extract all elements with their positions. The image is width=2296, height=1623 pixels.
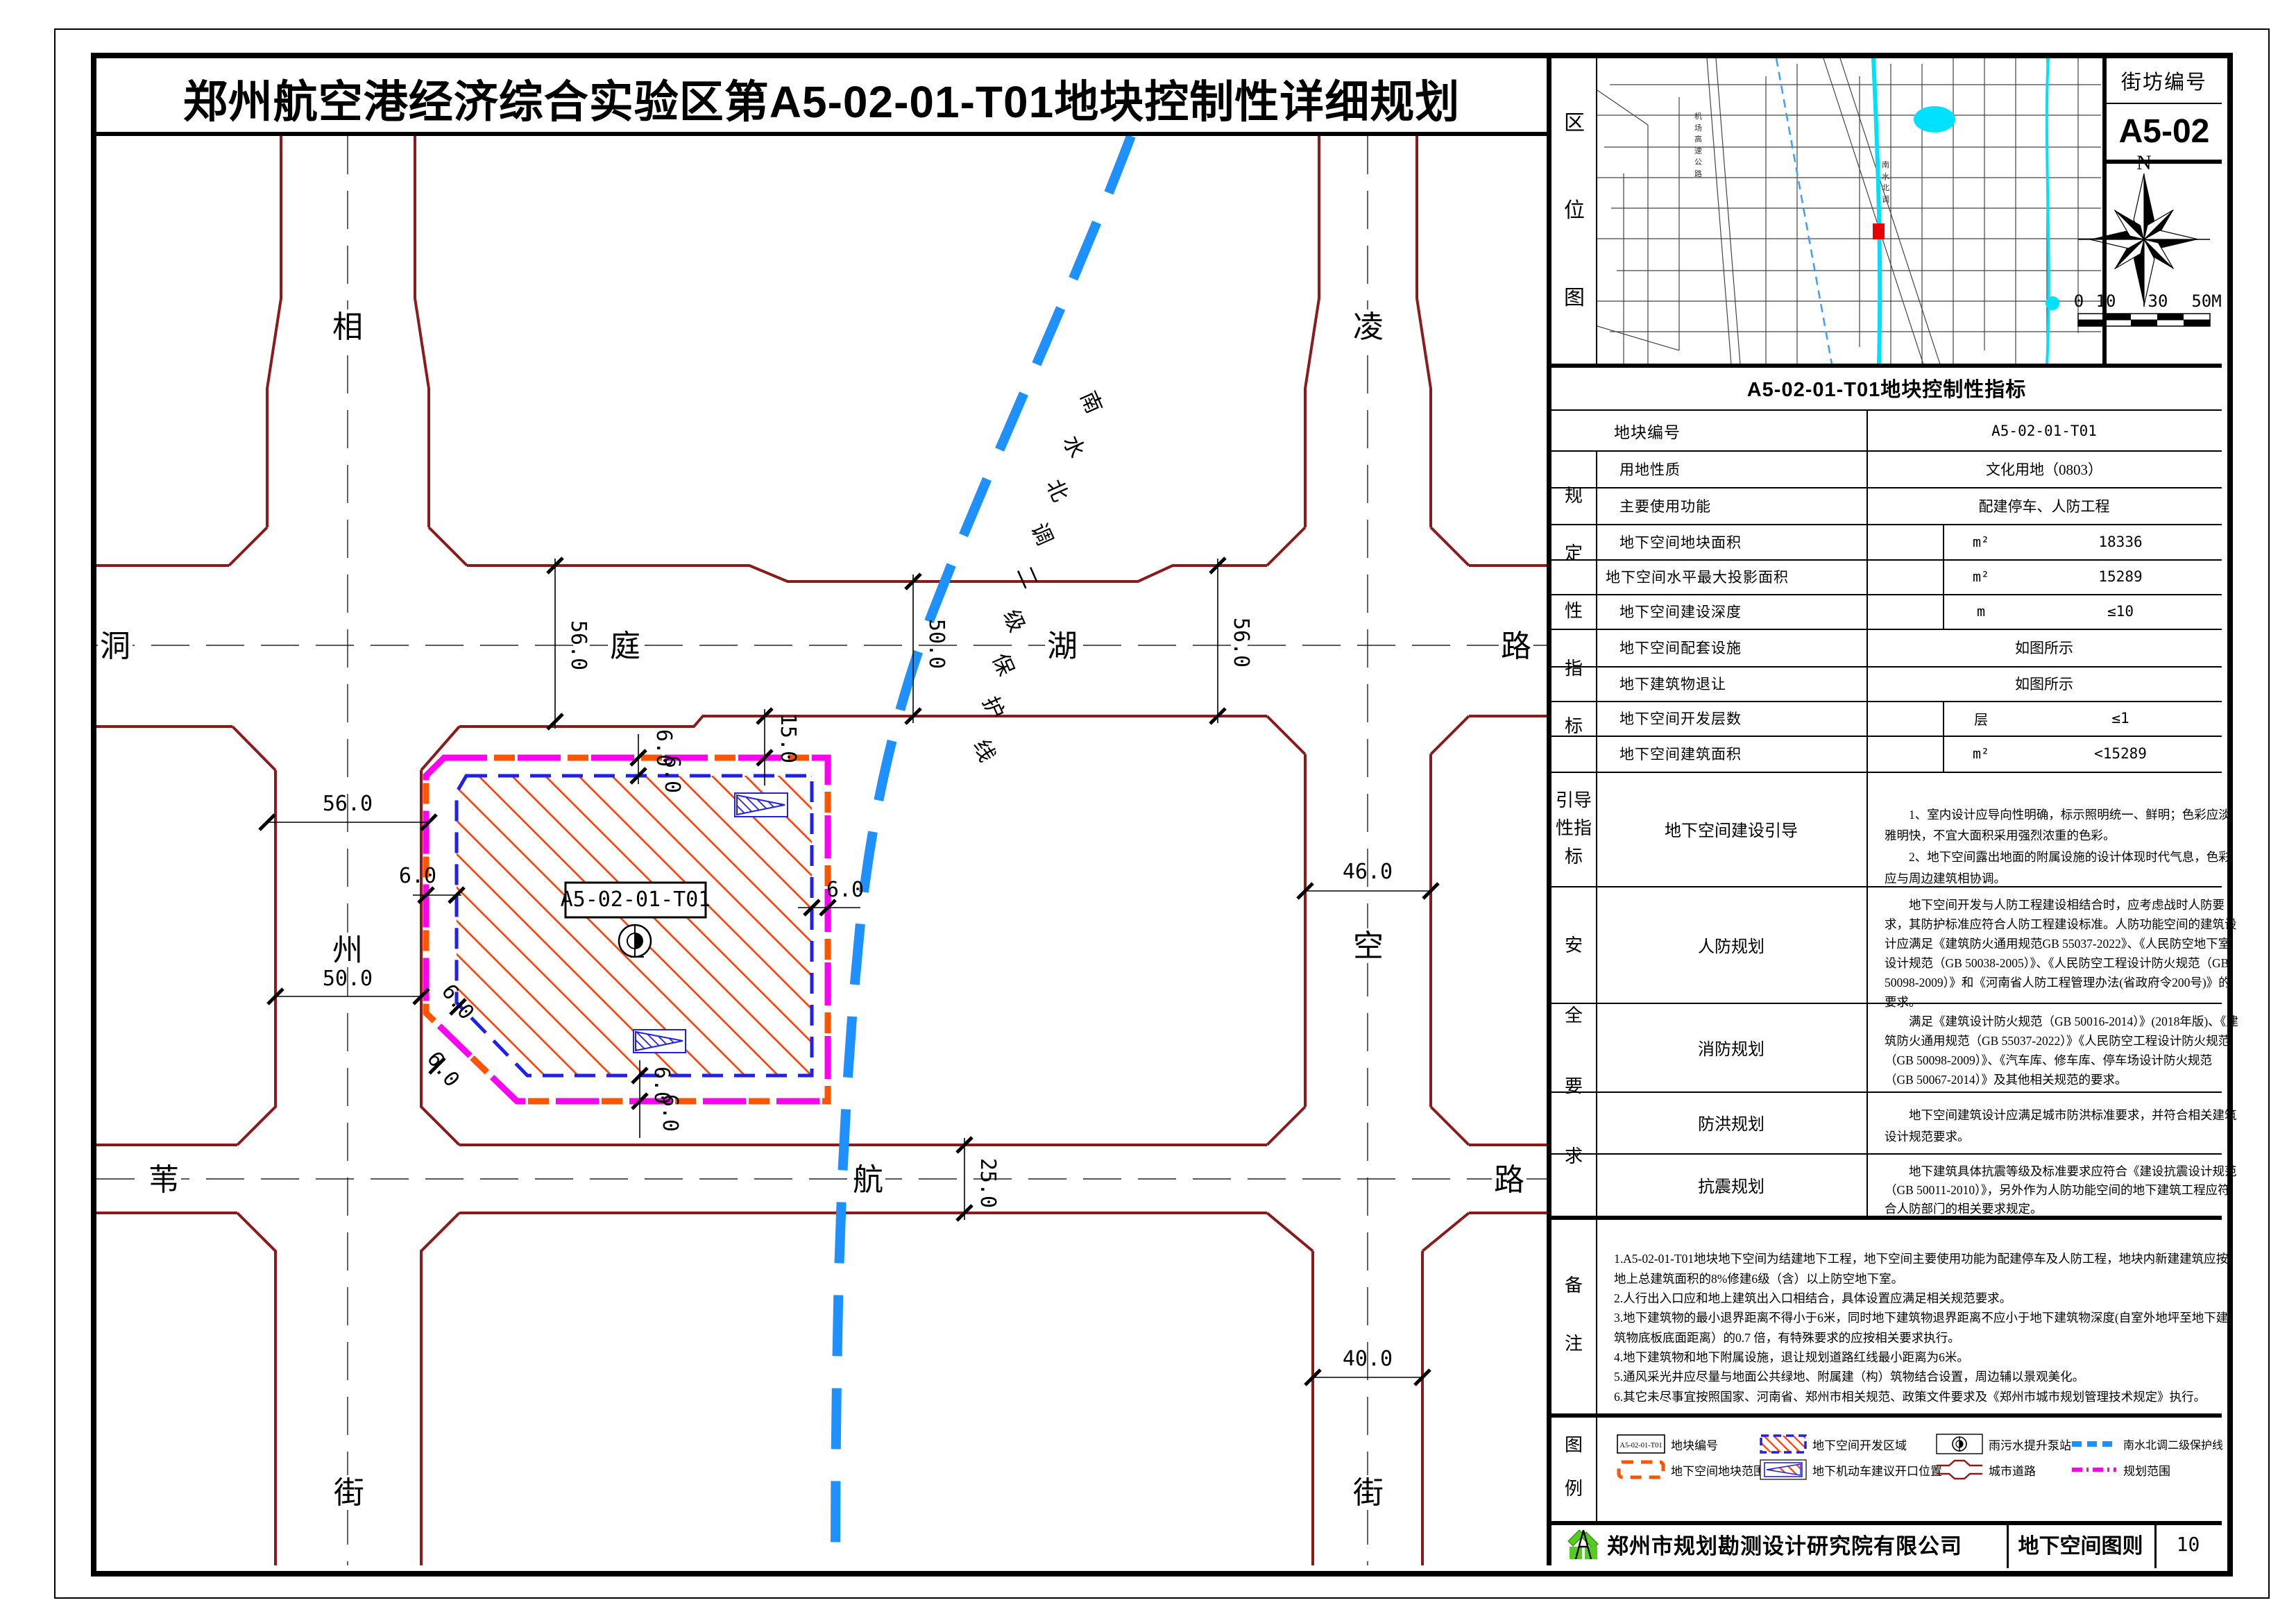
svg-text:级: 级 — [998, 606, 1030, 636]
block-number: A5-02 — [2107, 103, 2222, 160]
dimension-lines — [267, 559, 1431, 1377]
svg-text:相: 相 — [332, 310, 363, 344]
row-projection-unit: m² — [1943, 559, 2019, 594]
inset-pond — [2046, 296, 2059, 310]
svg-text:凌: 凌 — [1353, 310, 1384, 344]
row-floor-area-value: <15289 — [2019, 736, 2222, 772]
road-labels: 相 州 街 凌 空 街 洞 庭 湖 路 苇 航 路 — [100, 310, 1531, 1510]
safety-fire-label: 消防规划 — [1596, 1003, 1866, 1091]
svg-text:30: 30 — [2148, 291, 2168, 311]
row-setback-value: 如图所示 — [1866, 666, 2222, 701]
guide-label-cell: 地下空间建设引导 — [1596, 772, 1866, 886]
svg-text:水: 水 — [1058, 432, 1089, 461]
row-land-use-label: 用地性质 — [1596, 450, 1866, 487]
svg-text:湖: 湖 — [1047, 629, 1078, 663]
row-depth-label: 地下空间建设深度 — [1596, 594, 1866, 629]
legend-plot-range: 地下空间地块范围 — [1617, 1459, 1765, 1480]
section-regulatory-label: 规定性指标 — [1551, 450, 1596, 772]
legend-planning-range: 规划范围 — [2070, 1459, 2170, 1480]
plot-number-label-cell: 地块编号 — [1551, 411, 1866, 450]
company-logo — [1565, 1526, 1601, 1562]
legend-city-road-icon — [1936, 1459, 1983, 1480]
svg-text:6.0: 6.0 — [422, 1047, 464, 1091]
svg-text:56.0: 56.0 — [323, 792, 373, 816]
svg-text:保: 保 — [987, 649, 1019, 679]
legend-plot-number-icon: A5-02-01-T01 — [1617, 1434, 1665, 1454]
inset-street-label: 机场高速公路 — [1694, 111, 1703, 180]
location-inset — [1597, 58, 2101, 364]
svg-text:56.0: 56.0 — [566, 620, 590, 670]
svg-text:50.0: 50.0 — [924, 619, 949, 669]
parcel-label: A5-02-01-T01 — [561, 887, 711, 912]
location-label: 区位图 — [1551, 58, 1596, 364]
svg-text:航: 航 — [853, 1163, 883, 1197]
plot-number-value-cell: A5-02-01-T01 — [1866, 411, 2222, 450]
row-floor-area-label: 地下空间建筑面积 — [1596, 736, 1866, 772]
row-floor-area-unit: m² — [1943, 736, 2019, 772]
svg-text:护: 护 — [978, 692, 1009, 722]
row-projection-label: 地下空间水平最大投影面积 — [1596, 559, 1866, 594]
svg-text:庭: 庭 — [610, 629, 640, 663]
notes-text: 1.A5-02-01-T01地块地下空间为结建地下工程，地下空间主要使用功能为配… — [1596, 1223, 2251, 1422]
svg-text:6.0: 6.0 — [399, 864, 436, 888]
pump-station-icon — [619, 925, 651, 957]
section-safety-label: 安全要求 — [1551, 886, 1596, 1216]
block-number-label: 街坊编号 — [2107, 58, 2222, 103]
row-facilities-label: 地下空间配套设施 — [1596, 629, 1866, 666]
svg-text:南: 南 — [1075, 387, 1107, 417]
inset-lake — [1914, 106, 1955, 133]
row-depth-unit: m — [1943, 594, 2019, 629]
legend-vehicle-entrance: 地下机动车建议开口位置 — [1760, 1459, 1942, 1480]
svg-text:15.0: 15.0 — [776, 713, 800, 763]
row-function-value: 配建停车、人防工程 — [1866, 487, 2222, 524]
legend-city-road: 城市道路 — [1936, 1459, 2036, 1480]
footer-company: 郑州市规划勘测设计研究院有限公司 — [1607, 1529, 1962, 1560]
legend-planning-range-icon — [2070, 1459, 2118, 1480]
dimension-ticks — [260, 558, 1438, 1385]
footer-page-number: 10 — [2154, 1521, 2222, 1567]
legend-pump-station: 雨污水提升泵站 — [1936, 1434, 2071, 1454]
svg-text:州: 州 — [332, 933, 363, 967]
svg-text:苇: 苇 — [148, 1163, 179, 1197]
row-plot-area-value: 18336 — [2019, 524, 2222, 559]
section-legend-label: 图例 — [1551, 1413, 1596, 1521]
svg-text:6.0: 6.0 — [660, 756, 684, 793]
row-floors-unit: 层 — [1943, 701, 2019, 736]
road-edges — [96, 136, 1547, 1565]
page-title: 郑州航空港经济综合实验区第A5-02-01-T01地块控制性详细规划 — [96, 67, 1547, 130]
row-land-use-value: 文化用地（0803） — [1866, 450, 2222, 487]
inset-site-marker — [1873, 223, 1885, 239]
row-floors-label: 地下空间开发层数 — [1596, 701, 1866, 736]
footer-company-cell: 郑州市规划勘测设计研究院有限公司 — [1561, 1521, 2007, 1567]
legend-pump-station-icon — [1936, 1434, 1983, 1454]
svg-text:街: 街 — [334, 1476, 364, 1510]
section-guide-label: 引导性指标 — [1551, 772, 1596, 886]
svg-text:北: 北 — [1041, 475, 1073, 505]
row-setback-label: 地下建筑物退让 — [1596, 666, 1866, 701]
svg-text:路: 路 — [1494, 1163, 1524, 1197]
svg-text:50.0: 50.0 — [323, 967, 373, 991]
legend-vehicle-entrance-icon — [1760, 1459, 1807, 1480]
svg-text:6.0: 6.0 — [826, 878, 864, 902]
safety-seismic-text: 地下建筑具体抗震等级及标准要求应符合《建设抗震设计规范（GB 50011-201… — [1866, 1155, 2258, 1227]
legend-plot-number: A5-02-01-T01 地块编号 — [1617, 1434, 1718, 1454]
scale-bar: 0 10 30 50M — [2074, 291, 2222, 326]
svg-text:0: 0 — [2074, 291, 2084, 311]
row-projection-value: 15289 — [2019, 559, 2222, 594]
svg-text:40.0: 40.0 — [1343, 1347, 1393, 1371]
water-protect-line — [835, 136, 1131, 1565]
indicator-table-header: A5-02-01-T01地块控制性指标 — [1551, 366, 2222, 409]
label-plates — [98, 309, 1533, 1510]
safety-civil-label: 人防规划 — [1596, 886, 1866, 1003]
section-notes-label: 备注 — [1551, 1216, 1596, 1413]
row-plot-area-unit: m² — [1943, 524, 2019, 559]
inset-canal-label: 南水北调 — [1882, 160, 1890, 205]
row-depth-value: ≤10 — [2019, 594, 2222, 629]
svg-text:街: 街 — [1353, 1476, 1384, 1510]
row-facilities-value: 如图所示 — [1866, 629, 2222, 666]
page-title-text: 郑州航空港经济综合实验区第A5-02-01-T01地块控制性详细规划 — [183, 67, 1460, 130]
safety-seismic-label: 抗震规划 — [1596, 1153, 1866, 1216]
main-map: A5-02-01-T01 — [96, 136, 1547, 1565]
svg-text:线: 线 — [969, 736, 1000, 765]
legend-dev-region: 地下空间开发区域 — [1760, 1434, 1907, 1454]
svg-text:A5-02-01-T01: A5-02-01-T01 — [1619, 1442, 1662, 1450]
svg-text:路: 路 — [1501, 629, 1531, 663]
row-plot-area-label: 地下空间地块面积 — [1596, 524, 1866, 559]
svg-text:25.0: 25.0 — [976, 1158, 1000, 1208]
row-function-label: 主要使用功能 — [1596, 487, 1866, 524]
safety-flood-label: 防洪规划 — [1596, 1091, 1866, 1153]
road-centerlines — [96, 136, 1547, 1565]
legend-plot-range-icon — [1617, 1459, 1665, 1480]
safety-civil-text: 地下空间开发与人防工程建设相结合时，应考虑战时人防要求，其防护标准应符合人防工程… — [1866, 888, 2258, 1014]
guide-text-cell: 1、室内设计应导向性明确，标示照明统一、鲜明；色彩应淡雅明快，不宜大面积采用强烈… — [1866, 776, 2258, 897]
plan-sheet: A5-02-01-T01 — [0, 0, 2296, 1623]
svg-text:46.0: 46.0 — [1343, 860, 1393, 884]
svg-text:56.0: 56.0 — [1229, 618, 1253, 668]
legend-water-protect-line: 南水北调二级保护线 — [2070, 1434, 2223, 1454]
svg-text:洞: 洞 — [100, 629, 130, 663]
svg-text:空: 空 — [1353, 929, 1384, 963]
legend-dev-region-icon — [1760, 1434, 1807, 1454]
svg-text:二: 二 — [1012, 562, 1043, 592]
safety-fire-text: 满足《建筑设计防火规范（GB 50016-2014）》(2018年版)、《建筑防… — [1866, 1005, 2258, 1103]
svg-text:调: 调 — [1026, 519, 1057, 549]
legend-water-protect-line-icon — [2070, 1434, 2118, 1454]
svg-text:6.0: 6.0 — [658, 1094, 682, 1132]
protect-line-caption: 南 水 北 调 二 级 保 护 线 — [969, 387, 1107, 765]
svg-text:50M: 50M — [2191, 291, 2221, 311]
footer-sheet-name: 地下空间图则 — [2007, 1521, 2154, 1567]
row-floors-value: ≤1 — [2019, 701, 2222, 736]
